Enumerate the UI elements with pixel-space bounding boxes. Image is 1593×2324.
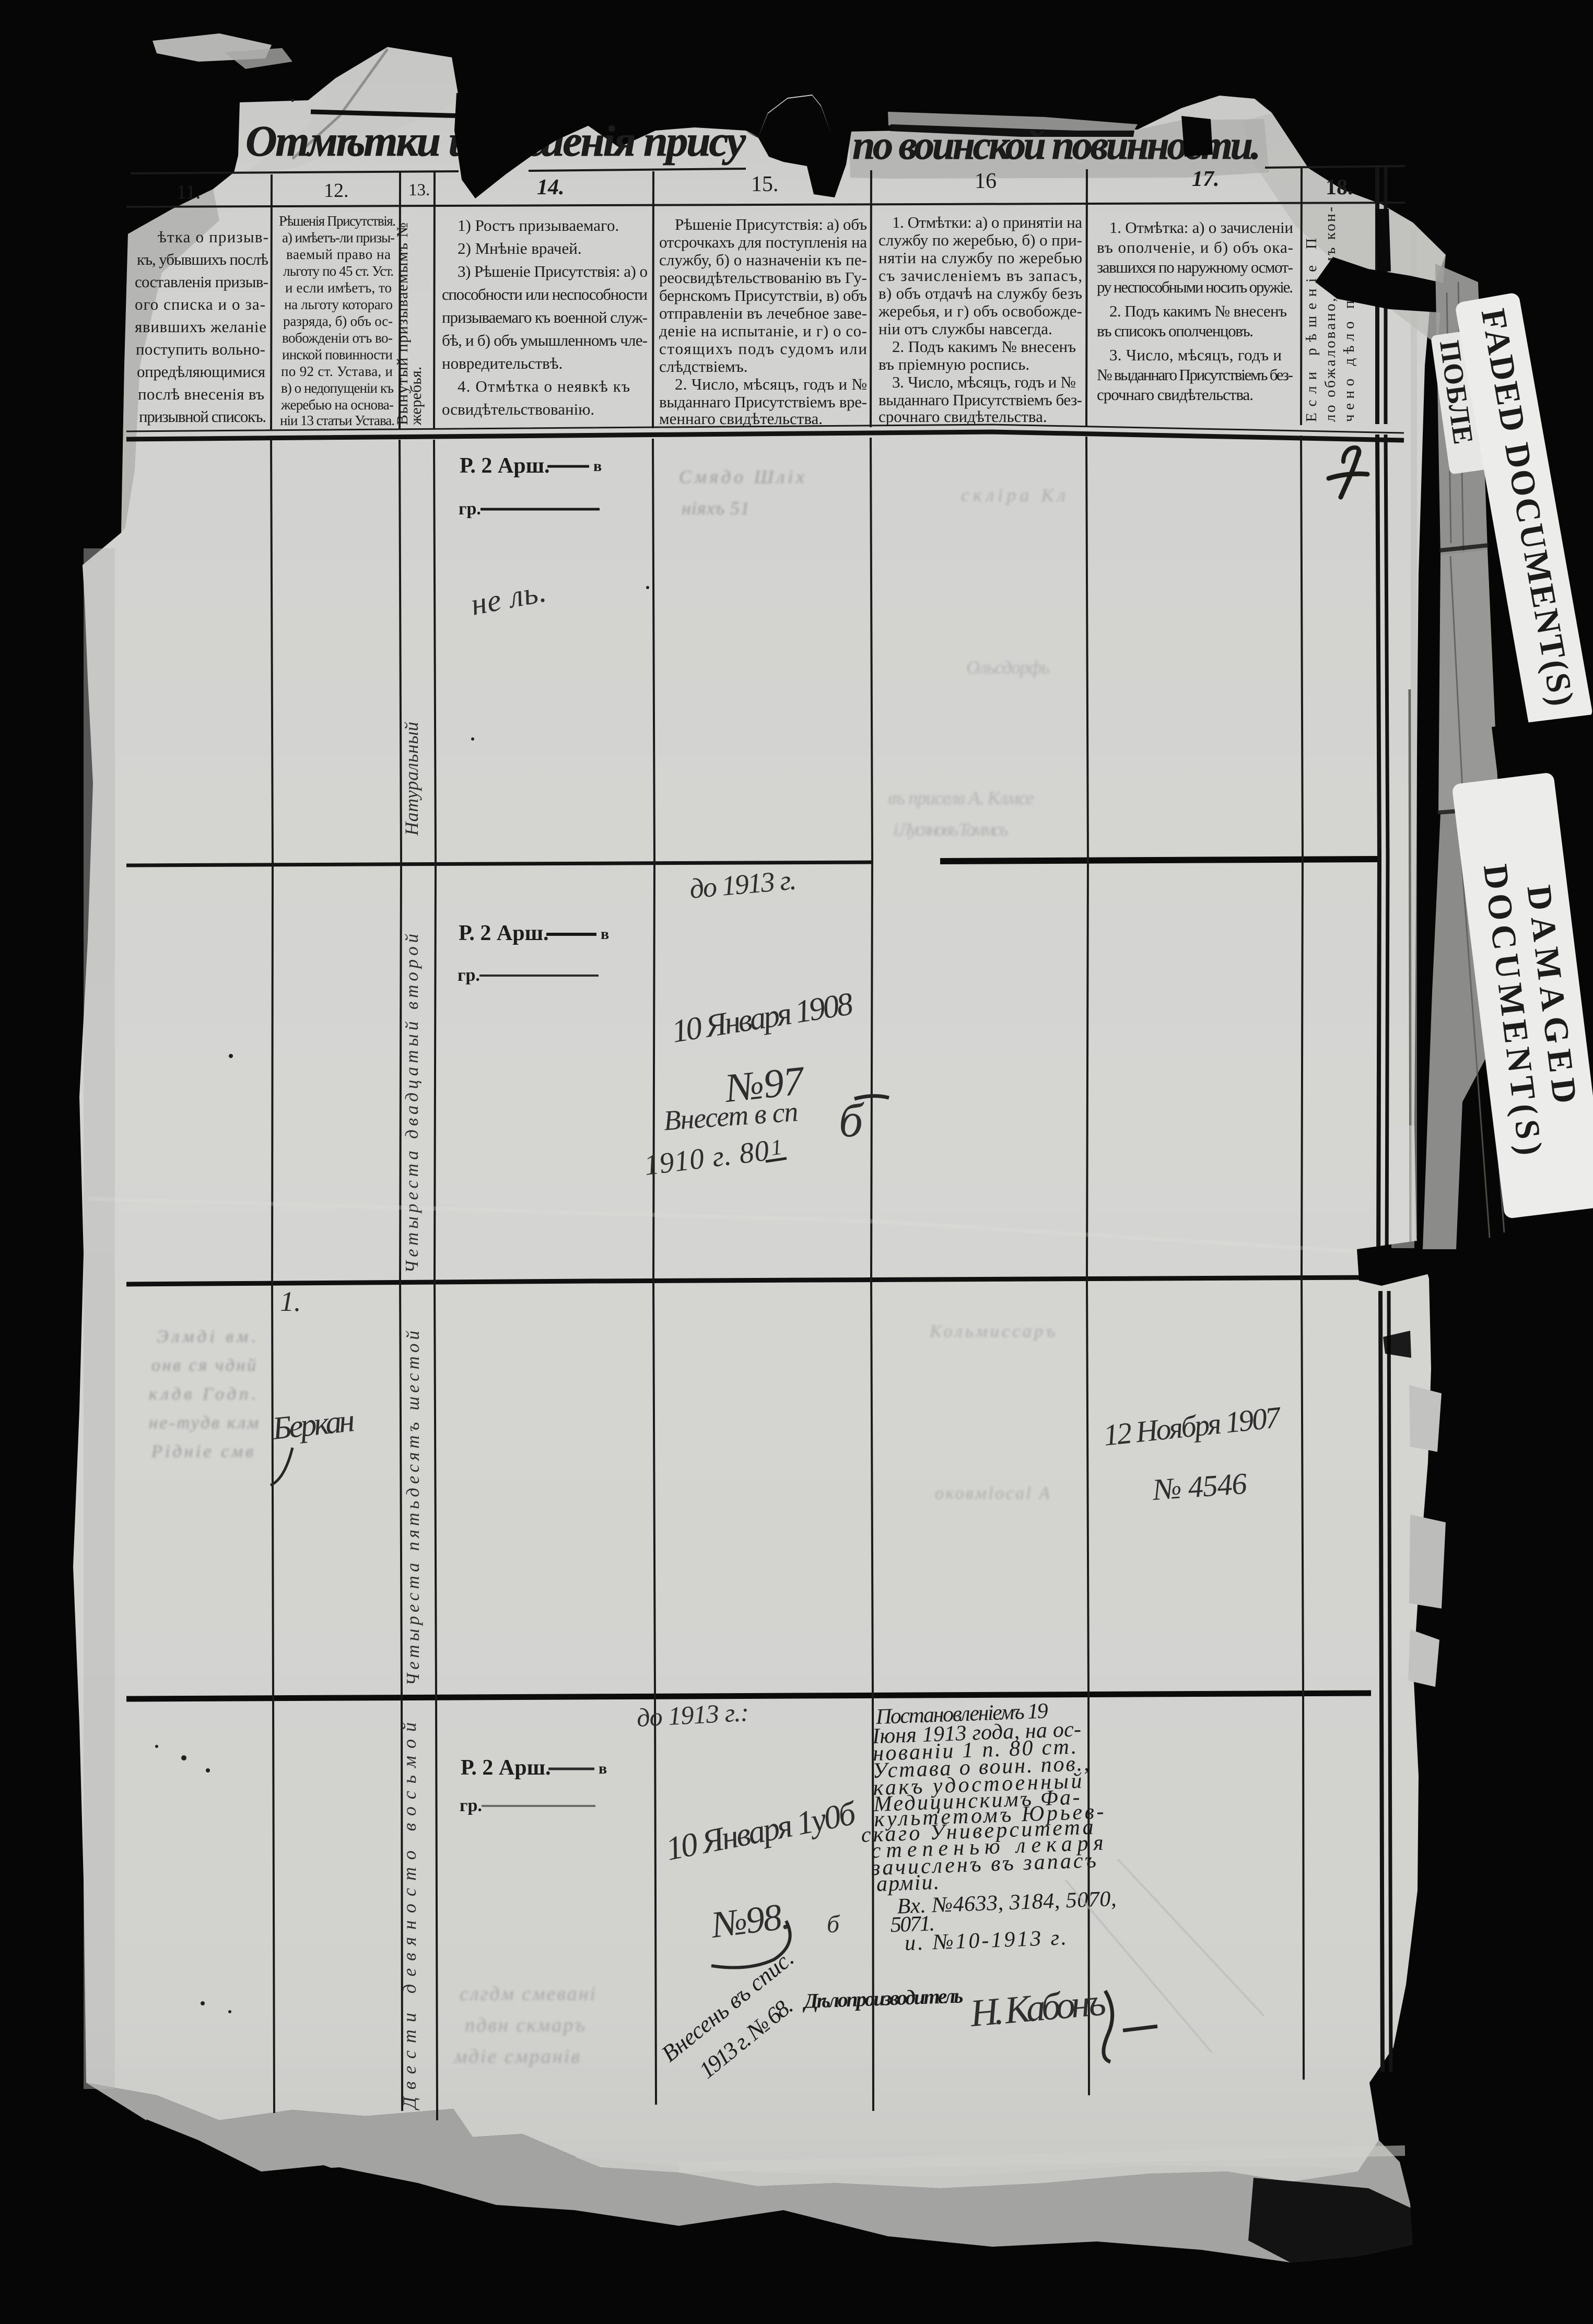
svg-text:инской повинности: инской повинности: [282, 347, 393, 362]
svg-text:в: в: [593, 457, 602, 475]
svg-text:12.: 12.: [324, 180, 349, 202]
svg-text:гр.: гр.: [460, 1796, 482, 1815]
svg-text:Рѣшеніе Присутствія: а) объ: Рѣшеніе Присутствія: а) объ: [675, 215, 867, 233]
svg-text:новредительствѣ.: новредительствѣ.: [442, 354, 563, 372]
svg-text:бернскомъ Присутствіи, в) объ: бернскомъ Присутствіи, в) объ: [659, 286, 867, 304]
svg-text:1. Отмѣтка: а) о зачислені: 1. Отмѣтка: а) о зачисленіи: [1109, 218, 1293, 237]
svg-text:Р. 2 Арш.: Р. 2 Арш.: [461, 1756, 551, 1780]
svg-text:составленія призыв-: составленія призыв-: [135, 273, 268, 291]
svg-text:Р. 2 Арш.: Р. 2 Арш.: [459, 921, 549, 945]
svg-text:отсрочкахъ для поступленія на: отсрочкахъ для поступленія на: [659, 233, 867, 251]
svg-text:Элмді вм.: Элмді вм.: [157, 1327, 256, 1346]
svg-text:на льготу котораго: на льготу котораго: [284, 297, 393, 312]
svg-text:гр.: гр.: [458, 966, 480, 985]
svg-text:3) Рѣшеніе Присутствія: а) о: 3) Рѣшеніе Присутствія: а) о: [458, 262, 648, 280]
svg-text:Натуральный: Натуральный: [401, 722, 422, 836]
svg-text:2. Подъ какимъ № внесенъ: 2. Подъ какимъ № внесенъ: [1109, 302, 1287, 320]
svg-text:льготу по 45 ст. Уст.: льготу по 45 ст. Уст.: [283, 263, 394, 279]
svg-text:въ приселв А. Клмсе: въ приселв А. Клмсе: [888, 788, 1034, 808]
svg-text:по 92 ст. Устава, и: по 92 ст. Устава, и: [281, 363, 393, 379]
svg-text:онв ся чднй: онв ся чднй: [151, 1356, 256, 1375]
svg-text:вобожденіи отъ во-: вобожденіи отъ во-: [282, 330, 393, 346]
svg-text:оковмlocal А: оковмlocal А: [935, 1484, 1050, 1503]
svg-text:б: б: [827, 1910, 840, 1938]
svg-text:Рѣшенія Присутствія.: Рѣшенія Присутствія.: [279, 213, 396, 229]
svg-text:не-тудв клм: не-тудв клм: [149, 1413, 259, 1433]
svg-text:1.: 1.: [280, 1286, 301, 1317]
svg-text:2. Число, мѣсяцъ, годъ и №: 2. Число, мѣсяцъ, годъ и №: [675, 375, 867, 393]
svg-text:3. Число, мѣсяцъ, годъ и №: 3. Число, мѣсяцъ, годъ и №: [892, 373, 1076, 391]
svg-text:въ пріемную роспись.: въ пріемную роспись.: [879, 355, 1029, 373]
svg-text:18.: 18.: [1326, 175, 1353, 199]
svg-text:съ зачисленіемъ въ запасъ,: съ зачисленіемъ въ запасъ,: [879, 266, 1082, 285]
svg-text:разряда, б) объ ос-: разряда, б) объ ос-: [283, 313, 393, 329]
svg-text:15.: 15.: [751, 172, 779, 196]
svg-text:въ ополченіе, и б) объ ок: въ ополченіе, и б) объ ока-: [1097, 238, 1293, 256]
svg-text:срочнаго свидѣтельства.: срочнаго свидѣтельства.: [879, 407, 1047, 426]
svg-text:Р. 2 Арш.: Р. 2 Арш.: [460, 454, 550, 478]
svg-text:жеребья.: жеребья.: [407, 367, 425, 426]
svg-text:ніи отъ службы навсегда.: ніи отъ службы навсегда.: [879, 320, 1052, 338]
svg-text:и если имѣетъ, то: и если имѣетъ, то: [285, 280, 392, 296]
svg-text:ру неспособными носить оружіе: ру неспособными носить оружіе.: [1097, 278, 1293, 296]
svg-text:2. Подъ какимъ № внесенъ: 2. Подъ какимъ № внесенъ: [892, 337, 1076, 356]
svg-text:4. Отмѣтка о неявкѣ къ: 4. Отмѣтка о неявкѣ къ: [458, 377, 630, 395]
svg-text:службу по жеребью, б) о при-: службу по жеребью, б) о при-: [879, 231, 1082, 249]
svg-text:меннаго свидѣтельства.: меннаго свидѣтельства.: [659, 409, 823, 428]
svg-text:а) имѣетъ-ли призы-: а) имѣетъ-ли призы-: [282, 230, 395, 245]
svg-text:ніяхъ 51: ніяхъ 51: [682, 498, 749, 519]
svg-text:№ 4546: № 4546: [1151, 1466, 1248, 1507]
svg-text:жеребью на основа-: жеребью на основа-: [280, 397, 394, 413]
svg-text:отправленіи въ лечебное заве-: отправленіи въ лечебное заве-: [659, 304, 867, 322]
svg-text:ѣтка о призыв-: ѣтка о призыв-: [158, 228, 268, 246]
svg-text:в) объ отдачѣ на службу безъ: в) объ отдачѣ на службу безъ: [879, 284, 1082, 302]
svg-text:въ списокъ ополченцовъ.: въ списокъ ополченцовъ.: [1097, 322, 1254, 340]
svg-text:бѣ, и б) объ умышленномъ: бѣ, и б) объ умышленномъ чле-: [442, 331, 648, 349]
svg-text:послѣ внесенія въ: послѣ внесенія въ: [138, 385, 264, 403]
svg-text:реосвидѣтельствованію въ Гу-: реосвидѣтельствованію въ Гу-: [659, 268, 867, 287]
svg-text:арміи.: арміи.: [876, 1870, 940, 1896]
svg-text:выданнаго Присутствіемъ без-: выданнаго Присутствіемъ без-: [879, 391, 1082, 409]
svg-text:способности или неспособност: способности или неспособности: [442, 285, 648, 303]
svg-text:слгдм смевані: слгдм смевані: [460, 1983, 595, 2005]
svg-text:ваемый право на: ваемый право на: [286, 247, 391, 262]
svg-text:11.: 11.: [177, 181, 201, 203]
svg-text:3. Число, мѣсяцъ, годъ и: 3. Число, мѣсяцъ, годъ и: [1109, 346, 1282, 364]
svg-text:16: 16: [975, 169, 997, 193]
svg-text:нятіи на службу по жеребью: нятіи на службу по жеребью: [879, 249, 1082, 267]
svg-text:поступить вольно-: поступить вольно-: [136, 340, 265, 358]
svg-text:мдіе смранів: мдіе смранів: [453, 2046, 580, 2068]
svg-text:къ, убывшихъ послѣ: къ, убывшихъ послѣ: [137, 250, 268, 268]
svg-text:до 1913 г.:: до 1913 г.:: [636, 1697, 750, 1732]
svg-text:скліра Кл: скліра Кл: [961, 485, 1065, 506]
svg-text:призывной списокъ.: призывной списокъ.: [139, 407, 266, 426]
svg-text:Кольмиссаръ: Кольмиссаръ: [929, 1322, 1055, 1341]
svg-text:в: в: [601, 925, 609, 943]
svg-text:17.: 17.: [1192, 167, 1220, 191]
svg-text:деніе на испытаніе, и г) о со-: деніе на испытаніе, и г) о со-: [659, 322, 867, 340]
svg-text:гр.: гр.: [459, 499, 481, 519]
svg-text:завшихся по наружному осмот-: завшихся по наружному осмот-: [1097, 258, 1293, 276]
svg-text:слѣдствіемъ.: слѣдствіемъ.: [659, 357, 748, 375]
svg-text:13.: 13.: [408, 181, 430, 199]
svg-text:ніи 13 статьи Устава.: ніи 13 статьи Устава.: [280, 413, 395, 428]
svg-text:в: в: [599, 1760, 607, 1777]
svg-text:освидѣтельствованію.: освидѣтельствованію.: [442, 400, 594, 418]
svg-text:жеребья, и г) объ освобожде-: жеребья, и г) объ освобожде-: [878, 302, 1082, 320]
svg-text:выданнаго Присутствіемъ вре-: выданнаго Присутствіемъ вре-: [659, 393, 867, 411]
svg-text:клдв Годп.: клдв Годп.: [149, 1384, 256, 1404]
svg-text:2) Мнѣніе врачей.: 2) Мнѣніе врачей.: [458, 239, 582, 257]
svg-text:стоящихъ подъ судомъ или: стоящихъ подъ судомъ или: [659, 339, 867, 358]
svg-text:б: б: [839, 1094, 864, 1147]
svg-text:і Лусяновъ Томмсъ: і Лусяновъ Томмсъ: [893, 819, 1008, 840]
svg-text:срочнаго свидѣтельства.: срочнаго свидѣтельства.: [1097, 385, 1254, 404]
svg-text:№ выданнаго Присутствіемъ без-: № выданнаго Присутствіемъ без-: [1097, 366, 1293, 384]
svg-text:призываемаго къ военной слу: призываемаго къ военной служ-: [442, 308, 648, 326]
svg-text:службу, б) о назначеніи къ пе-: службу, б) о назначеніи къ пе-: [659, 251, 867, 269]
svg-text:явившихъ желаніе: явившихъ желаніе: [135, 318, 266, 336]
svg-text:Ольсдорфь: Ольсдорфь: [966, 657, 1050, 678]
svg-text:14.: 14.: [537, 175, 565, 199]
svg-text:1. Отмѣтки: а) о принятіи на: 1. Отмѣтки: а) о принятіи на: [892, 213, 1082, 231]
svg-text:ого списка и о за-: ого списка и о за-: [135, 295, 265, 313]
svg-text:в) о недопущеніи къ: в) о недопущеніи къ: [281, 380, 394, 396]
svg-text:1) Ростъ призываемаго.: 1) Ростъ призываемаго.: [458, 216, 619, 234]
svg-text:опредѣляющимися: опредѣляющимися: [137, 362, 265, 381]
svg-text:пдвн скмаръ: пдвн скмаръ: [465, 2014, 585, 2036]
